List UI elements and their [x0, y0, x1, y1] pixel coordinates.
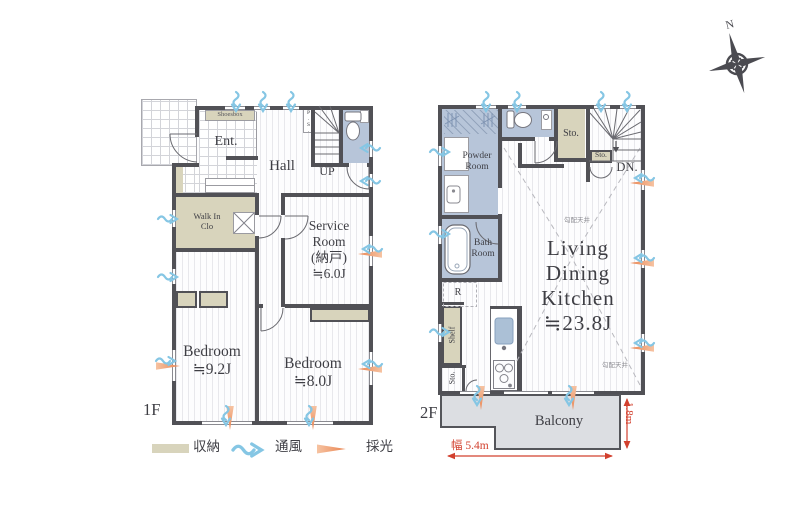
shoe-shelf [205, 185, 255, 193]
service-room-line: Room [309, 234, 349, 250]
compass-north-label: N [724, 18, 735, 33]
entrance-label: Ent. [215, 134, 238, 151]
wall-segment [498, 105, 502, 188]
coat-closet [176, 166, 183, 193]
service-room-line: Service [309, 218, 349, 234]
storage-bottom-label: Sto. [448, 372, 457, 385]
bedroom2-label: Bedroom ≒8.0J [284, 355, 342, 392]
wall-segment [255, 308, 259, 425]
powder-room-line: Room [462, 162, 491, 173]
service-room-line: ≒6.0J [309, 266, 349, 282]
bath-room-line: Room [471, 249, 494, 260]
width-dimension: 幅 5.4m [451, 440, 489, 454]
service-room-line: (納戸) [309, 250, 349, 266]
window [508, 105, 526, 109]
wall-segment [438, 105, 645, 109]
window [438, 146, 442, 166]
compass-icon [701, 26, 772, 100]
wall-segment [172, 163, 176, 425]
window [283, 106, 299, 110]
ldk-label: Living Dining Kitchen ≒23.8J [541, 236, 614, 336]
legend-daylight-icon [317, 444, 346, 453]
ldk-line: Living [541, 236, 614, 261]
bedroom2-line: Bedroom [284, 355, 342, 373]
ldk-line: Kitchen [541, 286, 614, 311]
walk-in-closet-label: Walk In Clo [194, 211, 221, 231]
wall-segment [311, 106, 315, 167]
toilet-basin-1f [360, 110, 369, 123]
window [369, 141, 373, 157]
bedroom1-line: Bedroom [183, 343, 241, 361]
powder-room-label: Powder Room [462, 151, 491, 173]
window [620, 105, 636, 109]
floor2-label: 2F [420, 403, 437, 422]
wall-segment [586, 105, 590, 182]
floorplan-page: Shoesbox Ent. Hall UP P.S. Walk In Clo S… [0, 0, 800, 531]
wall-segment [442, 302, 464, 305]
storage-top-label: Sto. [563, 128, 579, 140]
sloped-ceiling-note: 勾配天井 [602, 362, 628, 370]
balcony-label: Balcony [535, 413, 583, 430]
floor1-label: 1F [143, 400, 160, 419]
wall-segment [256, 112, 257, 156]
window [369, 236, 373, 266]
bedroom1-closet [199, 291, 228, 308]
wall-segment [554, 105, 558, 162]
window [172, 350, 176, 381]
floorplan-overlay [0, 0, 800, 531]
wall-segment [172, 248, 259, 252]
bedroom1-line: ≒9.2J [183, 361, 241, 379]
window [225, 106, 245, 110]
wall-segment [438, 278, 502, 282]
walk-in-closet-line: Clo [194, 221, 221, 231]
refrigerator-label: R [455, 287, 462, 299]
powder-room-line: Powder [462, 151, 491, 162]
wall-segment [518, 164, 564, 168]
bath-room-line: Bath [471, 238, 494, 249]
wall-segment [255, 236, 259, 252]
kitchen-partition [517, 308, 522, 391]
wall-segment [226, 156, 258, 160]
wall-segment [285, 304, 373, 308]
wall-segment [502, 137, 535, 141]
window [438, 324, 442, 342]
bedroom1-closet [176, 291, 197, 308]
stairs-up-label: UP [319, 164, 334, 178]
shoesbox-label: Shoesbox [217, 111, 242, 119]
service-room-label: Service Room (納戸) ≒6.0J [309, 218, 349, 282]
legend-daylight-label: 採光 [366, 439, 393, 455]
wall-segment [462, 365, 465, 394]
wall-segment [172, 193, 259, 197]
wall-segment [255, 197, 259, 215]
legend-ventilation-label: 通風 [275, 439, 302, 455]
wall-segment [281, 197, 285, 215]
entrance-porch-tiles [141, 99, 197, 166]
window [438, 226, 442, 244]
window [476, 105, 496, 109]
window [552, 391, 594, 395]
window [287, 421, 333, 425]
wall-segment [172, 163, 199, 167]
depth-dimension: 1.8m [622, 402, 635, 424]
wall-segment [554, 158, 590, 162]
wall-segment [367, 163, 373, 167]
window [369, 174, 373, 187]
closet-crossbox [233, 212, 255, 234]
sloped-ceiling-note: 勾配天井 [564, 217, 590, 225]
window [641, 170, 645, 190]
bath-room-label: Bath Room [471, 238, 494, 260]
legend-storage-swatch [152, 444, 189, 453]
balcony-door [504, 391, 548, 395]
wall-segment [339, 108, 343, 167]
window [641, 334, 645, 352]
wall-segment [195, 106, 199, 137]
storage-mid-label: Sto. [595, 151, 607, 160]
hand-basin-2f [541, 110, 552, 130]
window [369, 352, 373, 385]
shelf-label: Shelf [448, 327, 457, 344]
laundry-area [444, 110, 498, 134]
hall-label: Hall [269, 158, 295, 176]
pipe-space-label: P.S. [305, 110, 311, 134]
window [202, 421, 252, 425]
bedroom1-label: Bedroom ≒9.2J [183, 343, 241, 380]
stairs-down-label: DN. [616, 160, 637, 175]
wall-segment [498, 214, 502, 282]
ldk-line: ≒23.8J [541, 311, 614, 336]
window [460, 391, 490, 395]
window [254, 106, 270, 110]
bedroom2-line: ≒8.0J [284, 373, 342, 391]
vanity-counter [444, 175, 469, 213]
legend-ventilation-icon [233, 444, 262, 456]
ldk-line: Dining [541, 261, 614, 286]
wall-segment [281, 238, 285, 307]
wall-segment [281, 193, 373, 197]
bedroom2-closet [310, 308, 370, 322]
window [641, 250, 645, 268]
window [172, 269, 176, 284]
wall-segment [438, 215, 502, 219]
wall-segment [518, 143, 522, 168]
legend-storage-label: 収納 [193, 439, 220, 455]
window [172, 210, 176, 227]
window [594, 105, 610, 109]
walk-in-closet-line: Walk In [194, 211, 221, 221]
kitchen-island [490, 308, 518, 391]
wall-segment [255, 252, 259, 308]
